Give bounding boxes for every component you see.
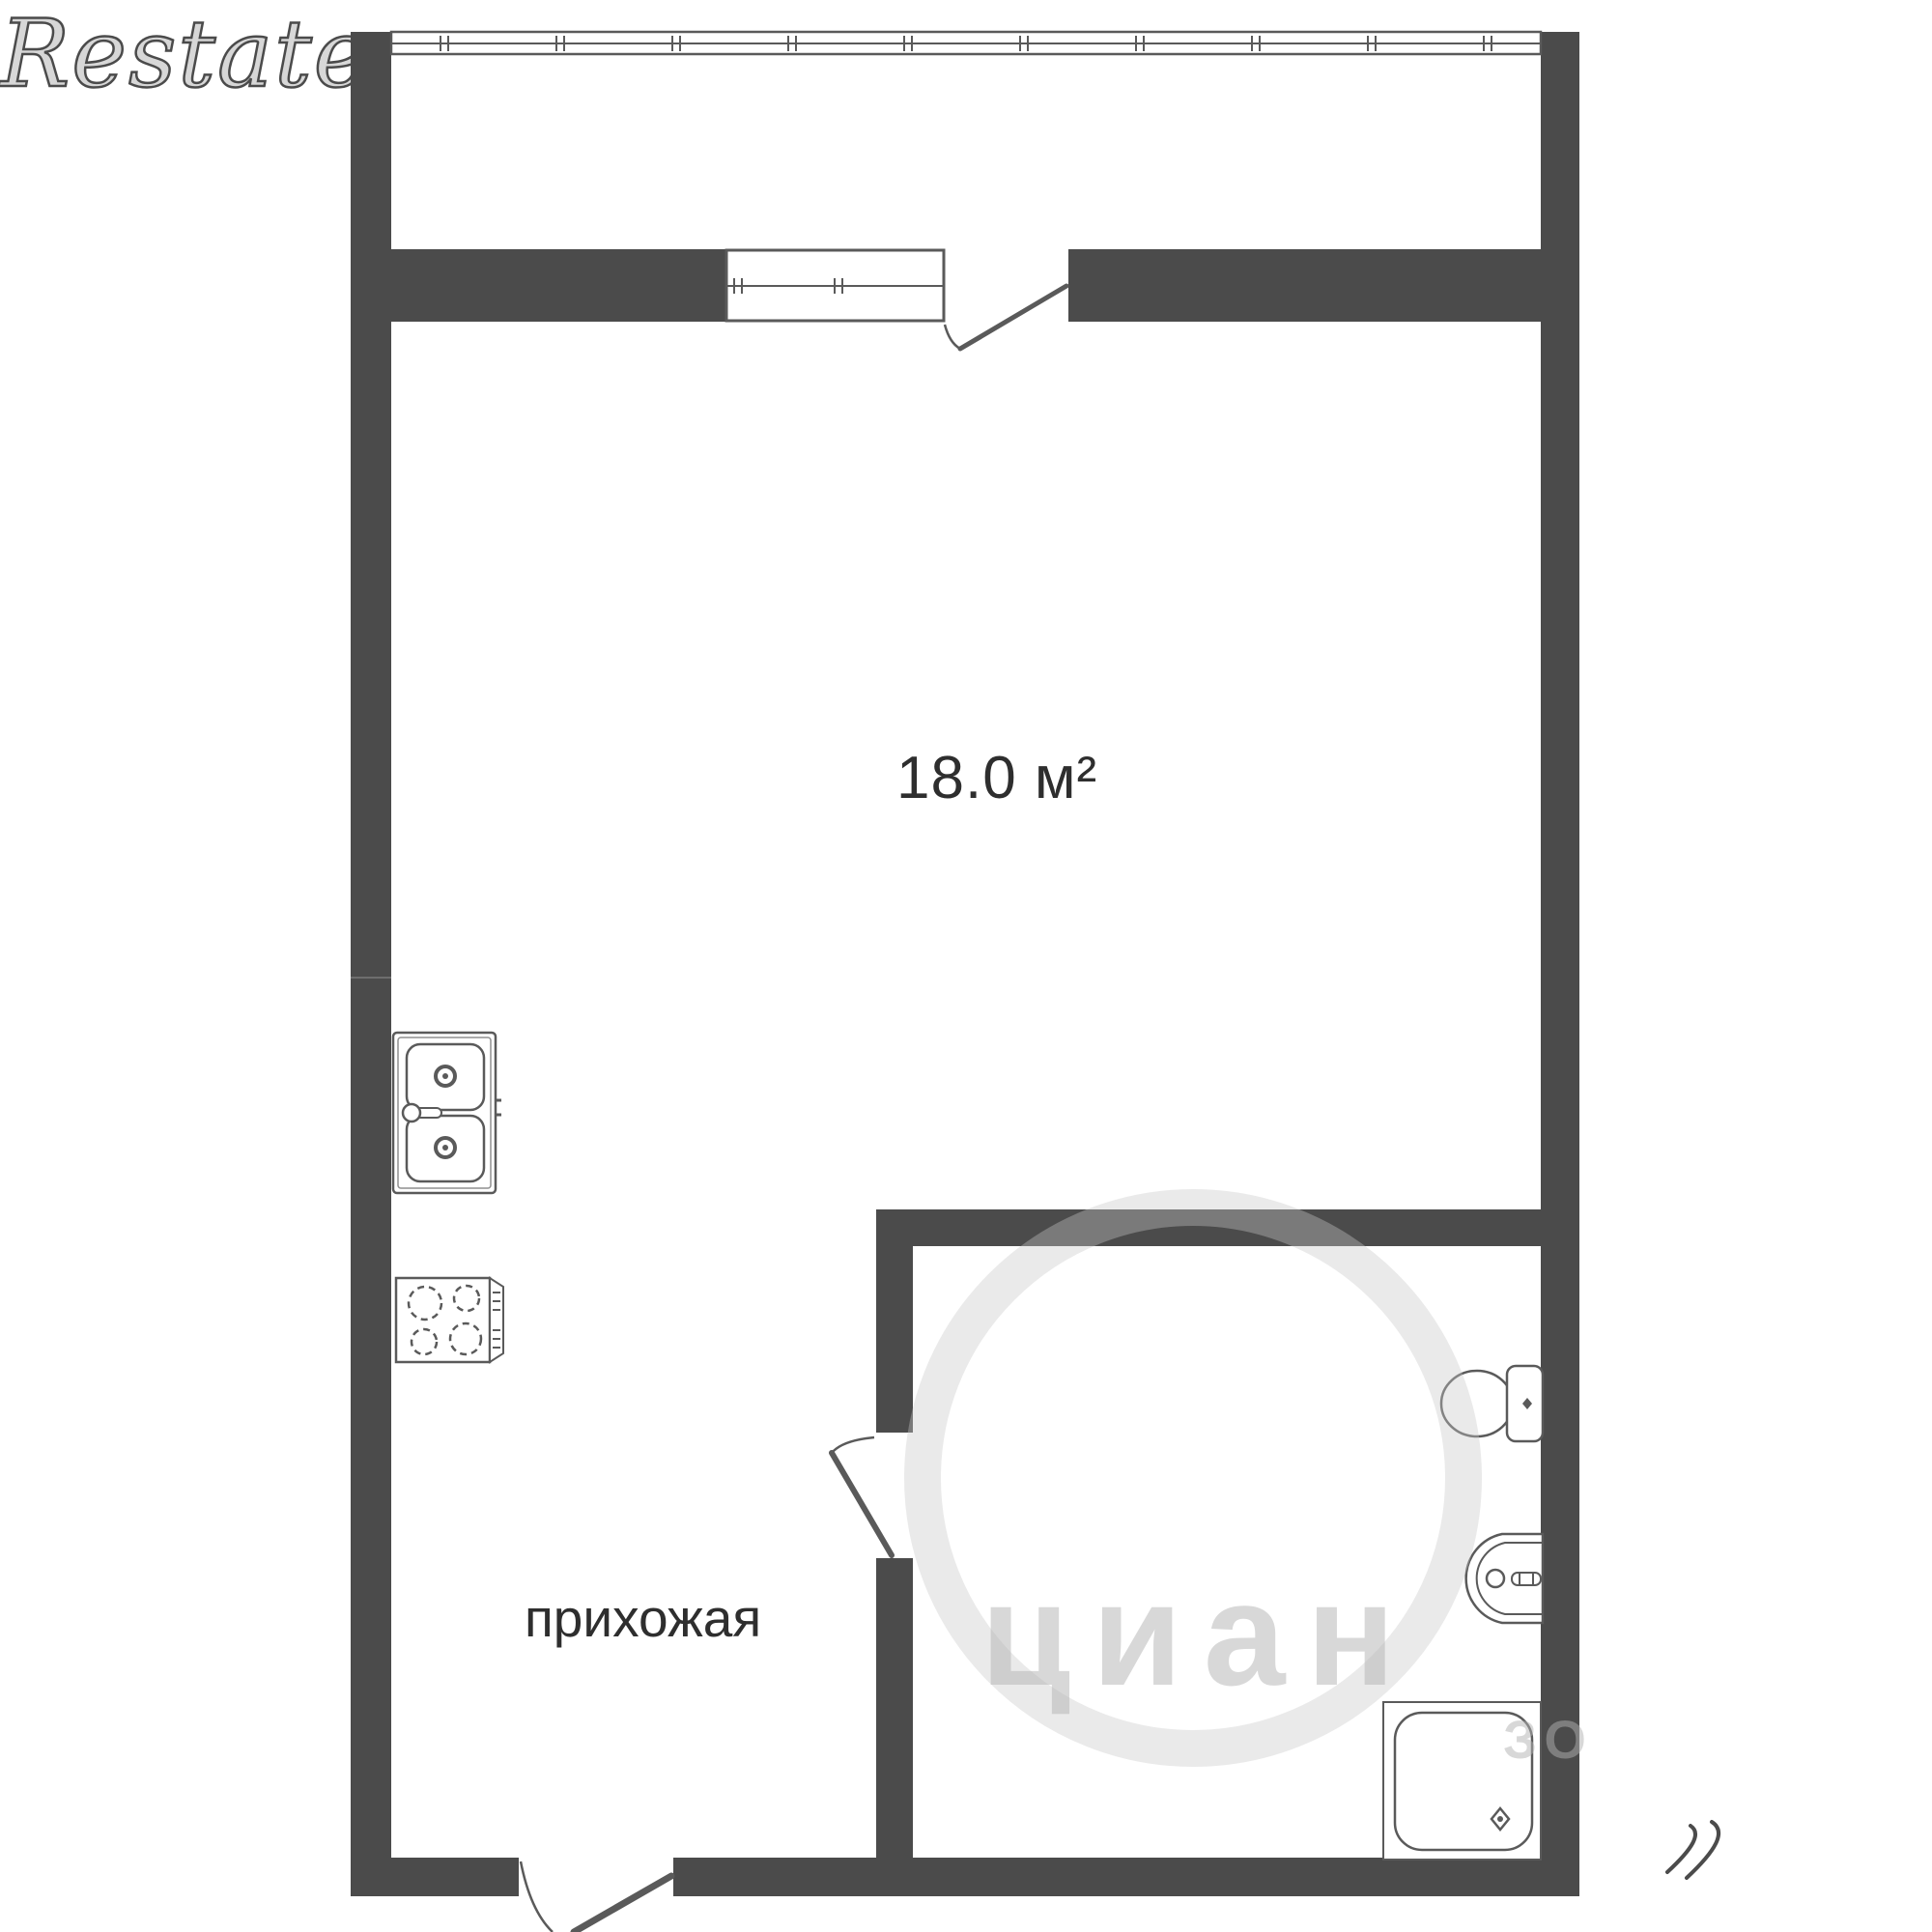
stove-icon <box>396 1278 503 1362</box>
entrance-door <box>521 1861 671 1932</box>
wall-bottom-right-segment <box>673 1858 1579 1896</box>
wall-left <box>351 32 391 1896</box>
kitchen-sink-icon <box>393 1033 501 1193</box>
room-area-label: 18.0 м² <box>896 744 1097 812</box>
balcony-window <box>391 32 1541 54</box>
bathroom-door <box>832 1437 892 1555</box>
wall-bottom-left-segment <box>351 1858 519 1896</box>
restate-swirl-icon <box>1667 1822 1719 1878</box>
wall-bathroom-left-lower <box>876 1558 913 1858</box>
wall-room-top-right-segment <box>1068 249 1541 322</box>
floor-plan-canvas <box>0 0 1932 1932</box>
shower-tray-icon <box>1383 1702 1541 1860</box>
wall-bathroom-left-upper <box>876 1209 913 1433</box>
floor-plan: 18.0 м² прихожая циан ЗО Restate <box>0 0 1932 1932</box>
balcony-door <box>945 286 1066 349</box>
watermark-circle <box>923 1207 1463 1748</box>
wall-room-top-left-segment <box>391 249 726 322</box>
washbasin-icon <box>1466 1534 1543 1623</box>
wall-right <box>1541 32 1579 1896</box>
hallway-label: прихожая <box>525 1587 761 1649</box>
kitchen-window <box>726 250 944 321</box>
